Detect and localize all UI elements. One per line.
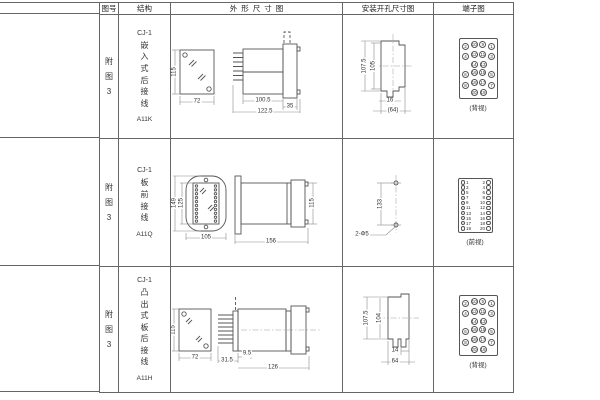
terminal-pin: 4 — [462, 53, 469, 60]
terminal-pin: 15 — [479, 69, 486, 76]
dim-overall-width: 64 — [391, 359, 400, 366]
series-text: CJ-1 — [137, 277, 152, 284]
terminal-pin-row: 21091 — [460, 41, 497, 51]
row3-outline-drawing: 115 72 31.5 9.5 126 — [171, 267, 343, 393]
terminal-pin — [486, 206, 491, 211]
terminal-pin — [486, 190, 491, 195]
terminal-pin: 9 — [479, 298, 486, 305]
terminal-pin-row: 2019 — [460, 89, 497, 96]
terminal-pin: 1 — [488, 43, 495, 50]
dim-body-depth: 100.5 — [254, 98, 271, 105]
document-page: { "header": { "fig_no": "图号", "structure… — [0, 0, 600, 400]
series-text: CJ-1 — [137, 30, 152, 37]
dim-front-height: 115 — [172, 66, 179, 78]
terminal-pin: 13 — [480, 318, 487, 325]
terminal-pin: 14 — [471, 61, 478, 68]
structure-text: 嵌入式后接线 — [139, 40, 150, 110]
terminal-pin — [461, 206, 466, 211]
model-text: A11K — [137, 116, 152, 123]
dim-front-height: 115 — [171, 324, 178, 336]
terminal-pin — [486, 201, 491, 206]
terminal-pin-row: 1413 — [460, 61, 497, 68]
terminal-pin-right: 20 — [480, 226, 491, 231]
terminal-pin — [486, 196, 491, 201]
terminal-pin: 19 — [480, 346, 487, 353]
dim-front-width: 105 — [200, 235, 212, 242]
dim-front-width: 72 — [191, 355, 200, 362]
dim-hole-spacing: 133 — [378, 198, 385, 210]
row2-terminal-diagram: 1234567891011121314151617181920 (前视) — [434, 139, 514, 267]
terminal-pin: 6 — [462, 328, 469, 335]
terminal-pin: 9 — [479, 41, 486, 48]
terminal-block: 2109141211314136161558181772019 — [459, 295, 498, 356]
structure-text: 凸出式板后接线 — [139, 287, 150, 368]
terminal-pin-row: 616155 — [460, 326, 497, 336]
dim-slot-width: 14 — [391, 348, 400, 355]
terminal-pin — [461, 211, 466, 216]
terminal-pin: 8 — [462, 82, 469, 89]
terminal-pin: 11 — [479, 51, 486, 58]
dim-inner-height: 105 — [371, 60, 378, 72]
terminal-pin: 17 — [479, 79, 486, 86]
dim-body-depth: 126 — [267, 365, 279, 372]
dim-outer-height: 107.5 — [364, 309, 371, 326]
terminal-pin: 17 — [479, 336, 486, 343]
terminal-pin: 10 — [471, 41, 478, 48]
dim-front-inner-height: 125 — [179, 197, 186, 209]
terminal-pin-row: 1413 — [460, 318, 497, 325]
terminal-pin — [461, 201, 466, 206]
terminal-pin — [486, 185, 491, 190]
terminal-view-caption: (背视) — [469, 359, 486, 369]
row2-fig-no: 附图3 — [100, 139, 119, 267]
row2-structure: CJ-1 板前接线 A11Q — [119, 139, 171, 267]
dim-outer-height: 107.5 — [362, 57, 369, 74]
fig-no-text: 附图3 — [104, 307, 114, 353]
mounting-svg-a11h — [343, 267, 433, 392]
rule-row2-bottom — [0, 265, 100, 266]
terminal-pin-row: 616155 — [460, 69, 497, 79]
terminal-pin: 12 — [471, 308, 478, 315]
header-col-mounting: 安装开孔尺寸图 — [343, 3, 434, 15]
row3-mounting-drawing: 107.5 104 14 64 — [343, 267, 434, 393]
terminal-pin: 2 — [462, 43, 469, 50]
row1-fig-no: 附图3 — [100, 15, 119, 139]
terminal-pin — [461, 216, 466, 221]
terminal-pin-row: 412113 — [460, 308, 497, 318]
terminal-pin — [461, 180, 466, 185]
mounting-svg-a11k — [343, 15, 433, 138]
row2-outline-drawing: 149 125 105 156 115 — [171, 139, 343, 267]
terminal-pin: 16 — [471, 69, 478, 76]
fig-no-text: 附图3 — [104, 180, 114, 226]
dim-total-depth: 122.5 — [256, 109, 273, 116]
structure-text: 板前接线 — [139, 177, 150, 223]
header-col-outline: 外形尺寸图 — [171, 3, 343, 15]
header-col-structure: 结构 — [119, 3, 171, 15]
spec-table: 图号 结构 外形尺寸图 安装开孔尺寸图 端子图 附图3 CJ-1 嵌入式后接线 … — [99, 2, 514, 393]
terminal-pin: 14 — [471, 318, 478, 325]
terminal-view-caption: (前视) — [466, 236, 483, 246]
terminal-pin: 7 — [488, 82, 495, 89]
terminal-pin: 20 — [471, 346, 478, 353]
terminal-pin-row: 818177 — [460, 336, 497, 346]
row3-terminal-diagram: 2109141211314136161558181772019 (背视) — [434, 267, 514, 393]
terminal-pin — [486, 216, 491, 221]
dim-total-depth: 156 — [265, 239, 277, 246]
rule-top — [0, 2, 100, 3]
terminal-pin: 13 — [480, 61, 487, 68]
model-text: A11H — [137, 375, 153, 382]
terminal-pin-left: 19 — [461, 226, 472, 231]
header-label: 外形尺寸图 — [226, 3, 288, 14]
outline-svg-a11k — [171, 15, 342, 138]
model-text: A11Q — [136, 231, 152, 238]
outline-svg-a11h — [171, 267, 342, 392]
terminal-pin — [461, 226, 466, 231]
terminal-pin: 5 — [488, 71, 495, 78]
terminal-pin: 8 — [462, 339, 469, 346]
terminal-pin — [461, 196, 466, 201]
row3-structure: CJ-1 凸出式板后接线 A11H — [119, 267, 171, 393]
terminal-pin — [486, 180, 491, 185]
terminal-pin: 5 — [488, 328, 495, 335]
dim-flange-depth: 35 — [286, 104, 295, 111]
dim-inner-height: 104 — [377, 312, 384, 324]
dim-gap-depth: 9.5 — [242, 351, 252, 358]
terminal-pin: 11 — [479, 308, 486, 315]
header-col-terminal: 端子图 — [434, 3, 514, 15]
row1-outline-drawing: 115 72 100.5 35 122.5 — [171, 15, 343, 139]
header-label: 端子图 — [462, 3, 485, 14]
terminal-view-caption: (背视) — [469, 102, 486, 112]
terminal-pin: 19 — [480, 89, 487, 96]
row1-terminal-diagram: 2109141211314136161558181772019 (背视) — [434, 15, 514, 139]
row1-mounting-drawing: 107.5 105 16 (64) — [343, 15, 434, 139]
rule-row3-bottom — [0, 391, 100, 392]
row3-fig-no: 附图3 — [100, 267, 119, 393]
terminal-pin-number: 19 — [466, 226, 471, 231]
header-label: 安装开孔尺寸图 — [362, 3, 415, 14]
terminal-pin — [486, 221, 491, 226]
row2-mounting-drawing: 133 2-Φ5 — [343, 139, 434, 267]
terminal-pin: 2 — [462, 300, 469, 307]
terminal-pin: 3 — [488, 53, 495, 60]
terminal-block: 1234567891011121314151617181920 — [458, 178, 493, 233]
terminal-pin — [486, 211, 491, 216]
terminal-pin: 12 — [471, 51, 478, 58]
dim-front-outer-height: 149 — [172, 197, 179, 209]
dim-overall-width: (64) — [387, 108, 400, 115]
terminal-pin — [486, 226, 491, 231]
terminal-pin-row: 2019 — [460, 346, 497, 353]
terminal-pin-row: 818177 — [460, 79, 497, 89]
dim-side-height: 115 — [310, 197, 317, 209]
terminal-pin: 4 — [462, 310, 469, 317]
terminal-pin-row: 412113 — [460, 51, 497, 61]
terminal-pin-number: 20 — [480, 226, 485, 231]
terminal-pin: 20 — [471, 89, 478, 96]
fig-no-text: 附图3 — [104, 54, 114, 100]
dim-pin-depth: 31.5 — [220, 358, 234, 365]
dim-hole-label: 2-Φ5 — [354, 232, 369, 239]
dim-slot-width: 16 — [386, 98, 395, 105]
rule-header-bottom — [0, 13, 100, 14]
terminal-pin: 7 — [488, 339, 495, 346]
terminal-pin: 6 — [462, 71, 469, 78]
dim-front-width: 72 — [193, 99, 202, 106]
terminal-block: 2109141211314136161558181772019 — [459, 38, 498, 99]
terminal-pin: 10 — [471, 298, 478, 305]
terminal-pin — [461, 221, 466, 226]
row1-structure: CJ-1 嵌入式后接线 A11K — [119, 15, 171, 139]
terminal-pin-row: 21091 — [460, 298, 497, 308]
terminal-pin: 18 — [471, 79, 478, 86]
series-text: CJ-1 — [137, 167, 152, 174]
rule-row1-bottom — [0, 137, 100, 138]
terminal-pin: 15 — [479, 326, 486, 333]
terminal-pin: 1 — [488, 300, 495, 307]
header-col-fig-no: 图号 — [100, 3, 119, 15]
mounting-svg-a11q — [343, 139, 433, 266]
terminal-pin-row: 1920 — [459, 226, 492, 231]
header-label: 图号 — [102, 3, 117, 14]
terminal-pin: 3 — [488, 310, 495, 317]
terminal-pin — [461, 190, 466, 195]
header-label: 结构 — [137, 3, 152, 14]
terminal-pin — [461, 185, 466, 190]
terminal-pin: 16 — [471, 326, 478, 333]
terminal-pin: 18 — [471, 336, 478, 343]
